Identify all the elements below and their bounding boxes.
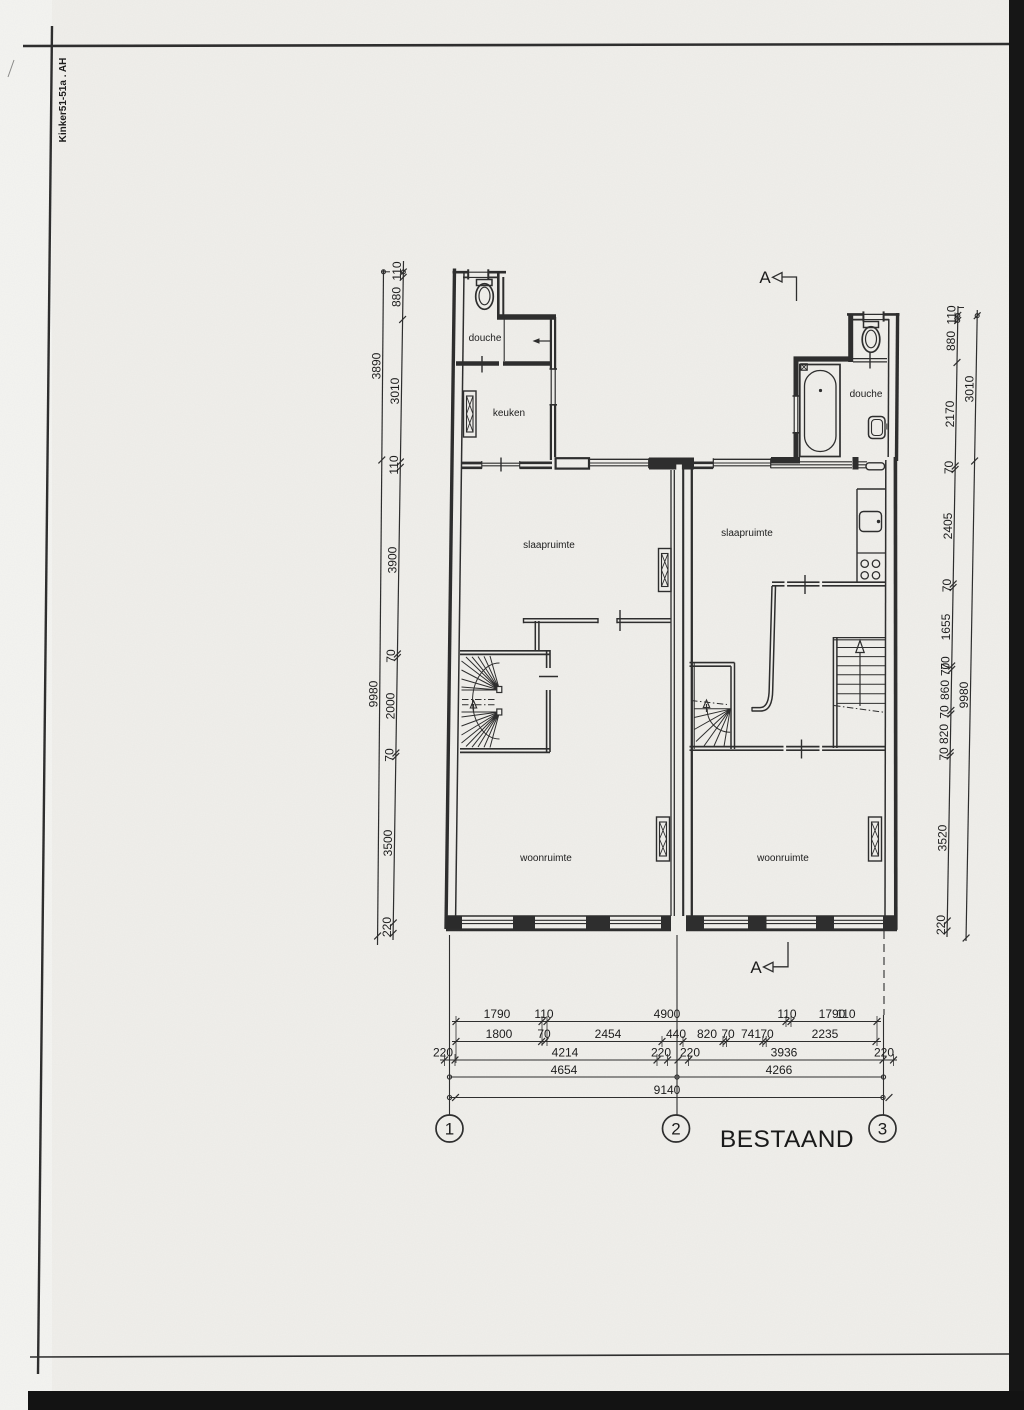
svg-text:110: 110 (836, 1007, 855, 1021)
svg-text:2405: 2405 (941, 512, 955, 539)
svg-text:220: 220 (934, 915, 948, 935)
svg-text:110: 110 (390, 261, 404, 280)
svg-text:70: 70 (537, 1027, 551, 1041)
svg-text:3520: 3520 (935, 824, 949, 851)
svg-text:1655: 1655 (939, 613, 953, 640)
svg-text:70: 70 (942, 461, 956, 475)
svg-text:woonruimte: woonruimte (756, 853, 809, 864)
svg-text:3900: 3900 (386, 546, 400, 573)
svg-text:BESTAAND: BESTAAND (720, 1126, 854, 1153)
svg-text:Kinker51-51a . AH: Kinker51-51a . AH (58, 58, 69, 143)
svg-text:4214: 4214 (552, 1046, 579, 1060)
svg-text:70: 70 (938, 705, 952, 719)
svg-text:820: 820 (697, 1027, 717, 1041)
svg-text:woonruimte: woonruimte (519, 853, 572, 864)
svg-text:220: 220 (651, 1046, 671, 1060)
svg-text:slaapruimte: slaapruimte (523, 540, 575, 551)
svg-text:A: A (759, 268, 771, 287)
svg-text:3890: 3890 (369, 352, 383, 379)
svg-text:2: 2 (671, 1120, 680, 1139)
svg-text:3: 3 (878, 1120, 887, 1139)
svg-text:70: 70 (384, 649, 398, 663)
svg-text:880: 880 (944, 331, 958, 351)
svg-text:2454: 2454 (595, 1027, 622, 1041)
svg-text:keuken: keuken (493, 408, 525, 419)
svg-text:douche: douche (469, 333, 502, 344)
svg-text:70: 70 (938, 663, 952, 677)
svg-text:9980: 9980 (366, 680, 380, 707)
svg-text:880: 880 (390, 287, 404, 307)
svg-text:3010: 3010 (963, 375, 977, 402)
svg-text:741: 741 (741, 1027, 761, 1041)
svg-text:220: 220 (874, 1046, 894, 1060)
svg-text:110: 110 (945, 305, 959, 324)
svg-text:douche: douche (850, 389, 883, 400)
svg-text:220: 220 (680, 1046, 700, 1060)
svg-text:1800: 1800 (486, 1027, 513, 1041)
svg-text:4900: 4900 (654, 1007, 681, 1021)
svg-text:4266: 4266 (766, 1063, 793, 1077)
svg-text:3010: 3010 (388, 377, 402, 404)
svg-text:820: 820 (937, 724, 951, 744)
svg-text:110: 110 (534, 1007, 553, 1021)
svg-text:A: A (750, 958, 762, 977)
svg-text:110: 110 (387, 455, 401, 474)
svg-text:9980: 9980 (957, 681, 971, 708)
svg-text:4654: 4654 (551, 1063, 578, 1077)
svg-text:1: 1 (445, 1120, 454, 1139)
svg-text:2000: 2000 (383, 692, 397, 719)
svg-text:9140: 9140 (654, 1083, 681, 1097)
svg-text:3500: 3500 (381, 829, 395, 856)
svg-text:220: 220 (380, 917, 394, 937)
svg-text:70: 70 (760, 1027, 774, 1041)
svg-text:slaapruimte: slaapruimte (721, 528, 773, 539)
svg-text:70: 70 (937, 747, 951, 761)
svg-text:3936: 3936 (771, 1046, 798, 1060)
svg-text:2170: 2170 (943, 400, 957, 427)
svg-text:70: 70 (383, 748, 397, 762)
svg-text:110: 110 (777, 1007, 796, 1021)
svg-text:1790: 1790 (484, 1007, 511, 1021)
svg-text:220: 220 (433, 1046, 453, 1060)
svg-text:860: 860 (938, 680, 952, 700)
svg-text:70: 70 (940, 579, 954, 593)
svg-text:2235: 2235 (812, 1027, 839, 1041)
